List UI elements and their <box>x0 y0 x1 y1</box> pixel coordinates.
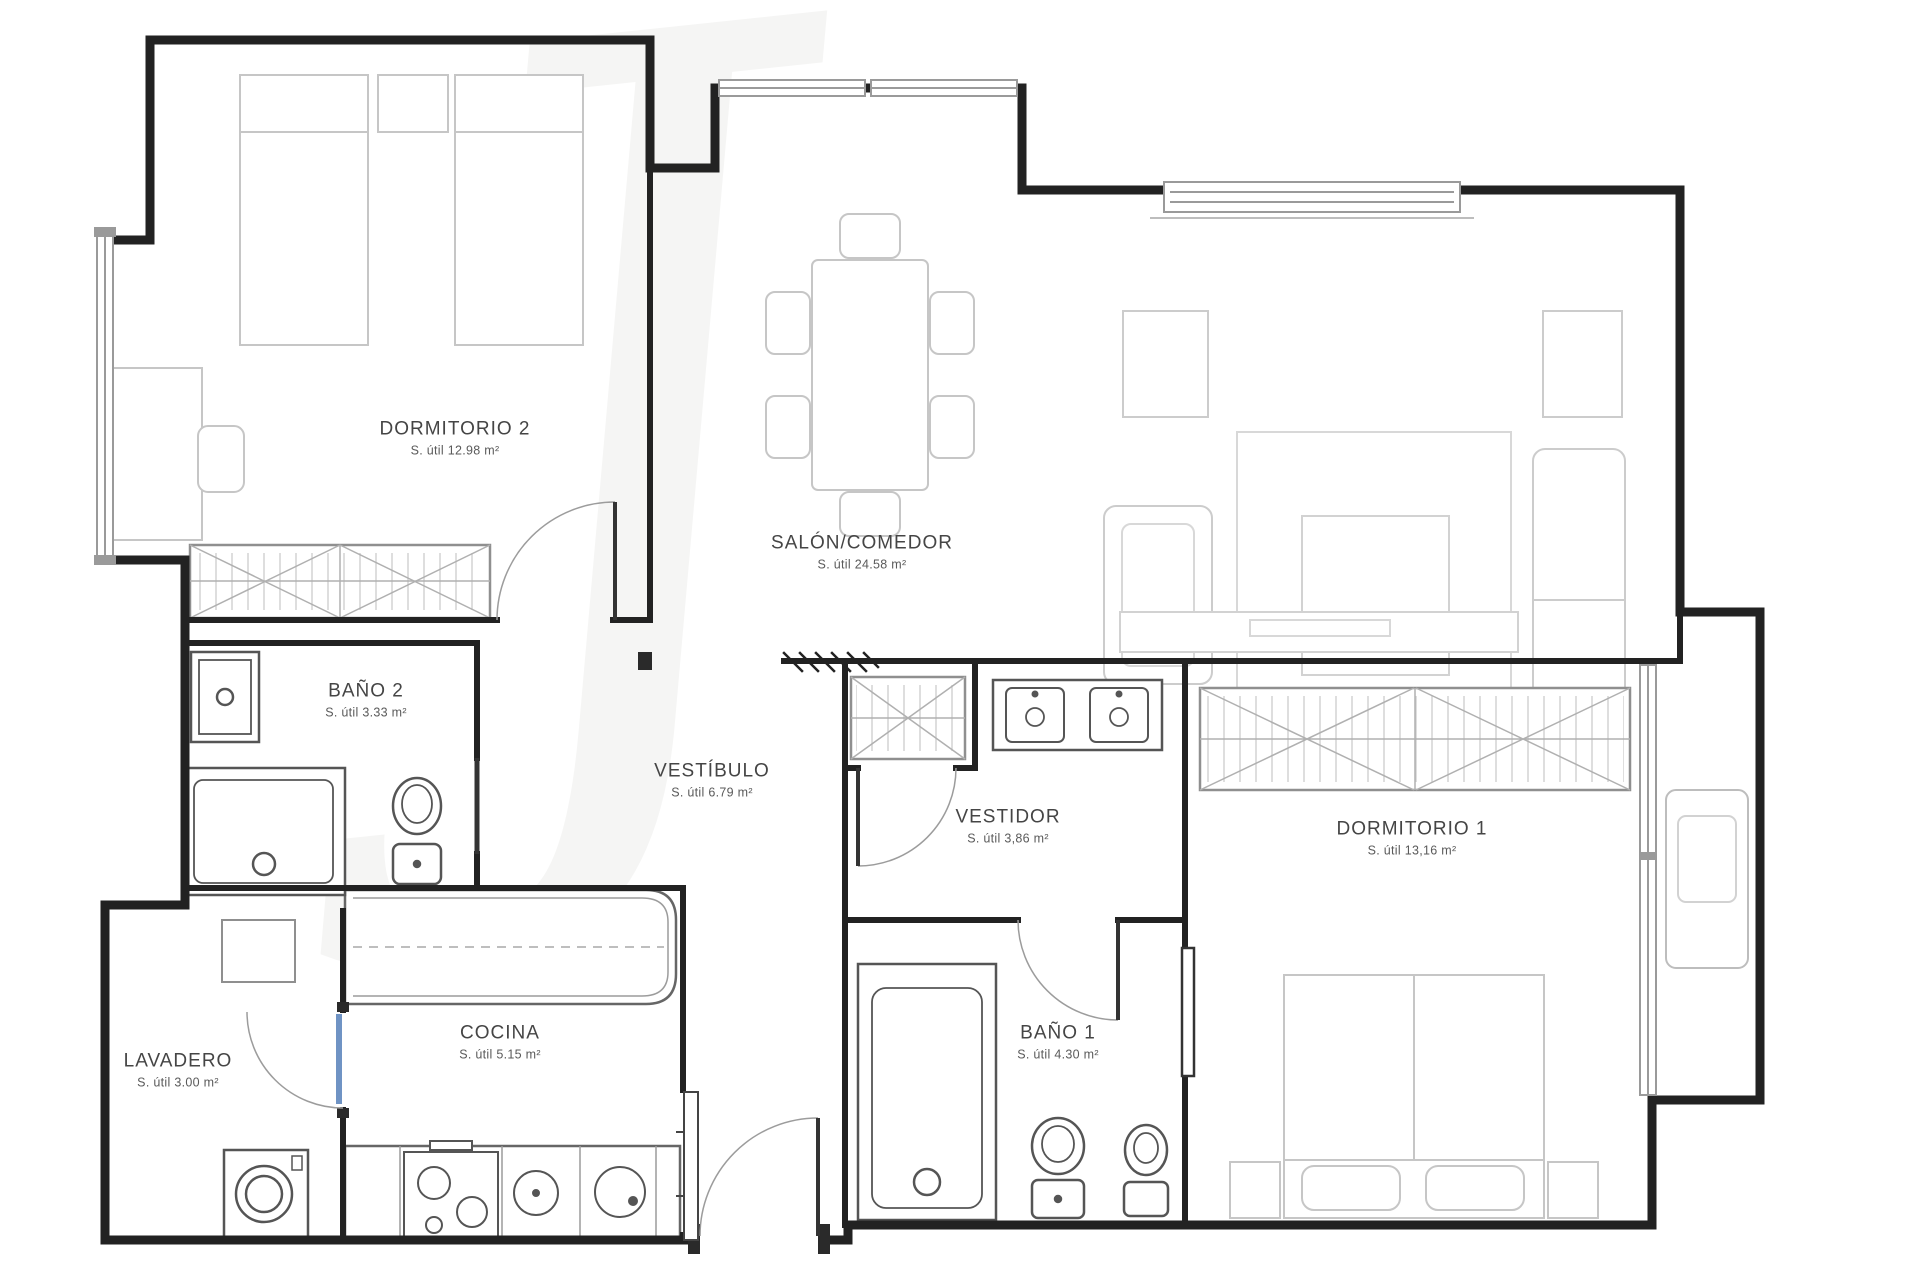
bedroom1-door-leaf <box>1182 948 1194 1076</box>
washing-machine-icon <box>224 1150 308 1238</box>
dining-set <box>766 214 974 536</box>
bedroom1-furniture <box>1230 975 1598 1218</box>
vanity-double-sink <box>993 680 1162 750</box>
terrace <box>1666 790 1748 968</box>
stove-icon <box>404 1141 498 1238</box>
floor-plan-page: J <box>0 0 1920 1280</box>
wardrobe-bedroom2 <box>190 545 490 618</box>
bedroom2-furniture <box>112 75 583 540</box>
entrance-opening <box>700 1228 818 1252</box>
closet-hall <box>851 677 965 759</box>
floor-plan-drawing <box>0 0 1920 1280</box>
wardrobe-bedroom1 <box>1200 688 1630 790</box>
bathroom1-fixtures <box>858 964 1168 1220</box>
door-leaves <box>477 502 1118 1236</box>
bathroom2-fixtures <box>182 652 441 895</box>
